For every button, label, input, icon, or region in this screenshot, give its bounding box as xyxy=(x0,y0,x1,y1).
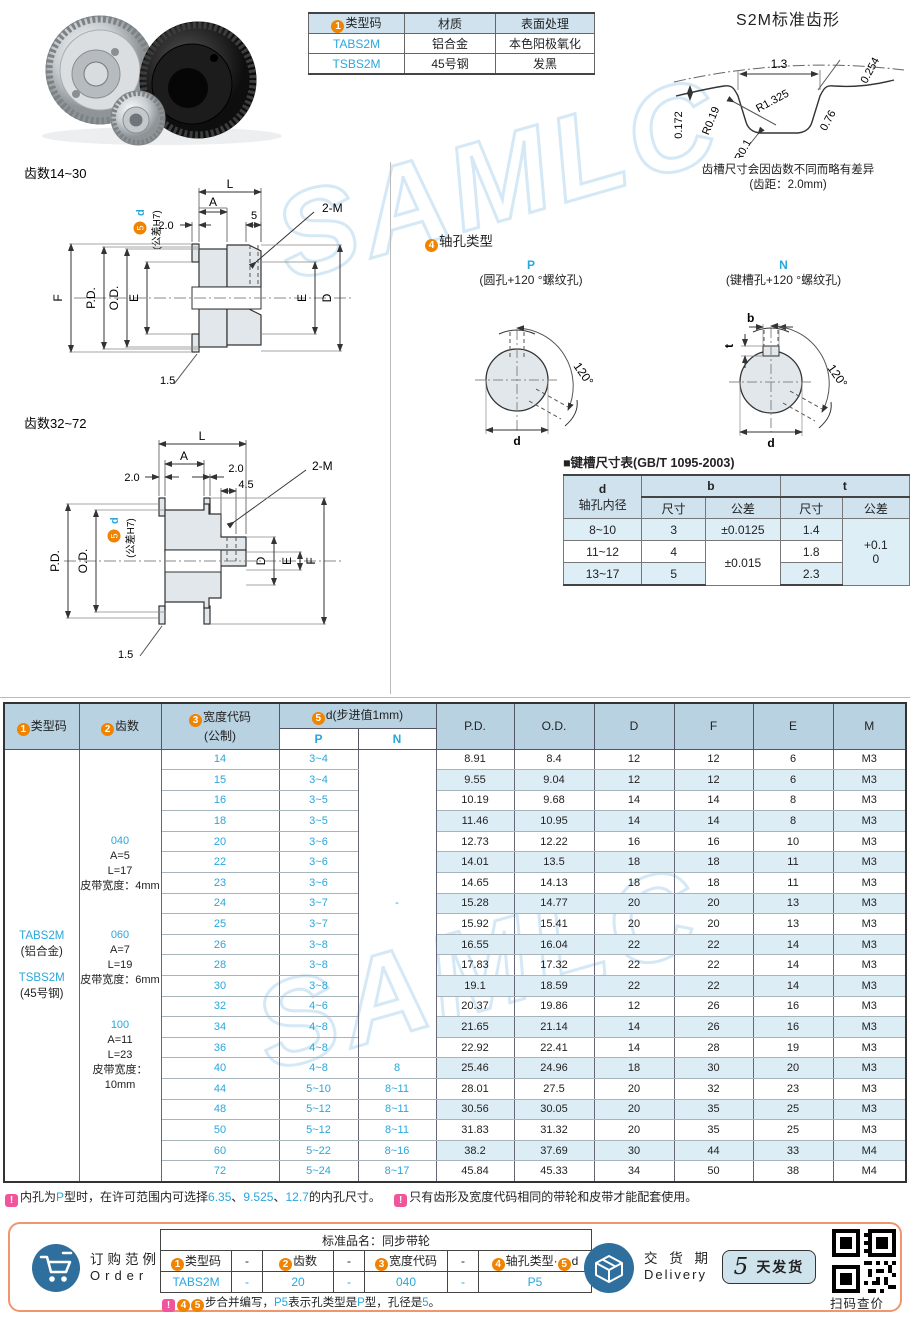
width-code-cell: 040A=5L=17皮带宽度：4mm060A=7L=19皮带宽度：6mm100A… xyxy=(79,749,161,1182)
kw-header-b: b xyxy=(642,475,780,497)
value-d: 22 xyxy=(594,934,674,955)
kw-b: 3 xyxy=(642,519,706,541)
exclamation-icon: ! xyxy=(394,1194,407,1207)
teeth-count: 15 xyxy=(161,770,279,791)
value-f: 14 xyxy=(674,790,753,811)
kw-d: 11~12 xyxy=(564,541,642,563)
value-od: 22.41 xyxy=(514,1037,594,1058)
value-d: 20 xyxy=(594,1079,674,1100)
order-footer: 订购范例 Order 标准品名：同步带轮 1类型码 - 2齿数 - 3宽度代码 … xyxy=(8,1222,902,1312)
order-value-row: TABS2M-20 -040-P5 xyxy=(161,1272,592,1293)
value-f: 30 xyxy=(674,1058,753,1079)
value-od: 14.77 xyxy=(514,893,594,914)
spec-header-type: 1类型码 xyxy=(309,13,405,34)
pulley-photo-illustration xyxy=(12,8,292,150)
drawing-large-teeth: 齿数32~72 L A xyxy=(14,410,384,697)
value-e: 11 xyxy=(753,873,833,894)
value-f: 28 xyxy=(674,1037,753,1058)
value-od: 14.13 xyxy=(514,873,594,894)
teeth-count: 34 xyxy=(161,1017,279,1038)
teeth-count: 36 xyxy=(161,1037,279,1058)
value-m: M3 xyxy=(833,1017,906,1038)
svg-text:齿数14~30: 齿数14~30 xyxy=(24,166,87,181)
value-m: M3 xyxy=(833,1099,906,1120)
value-e: 25 xyxy=(753,1120,833,1141)
material-spec-table: 1类型码 材质 表面处理 TABS2M 铝合金 本色阳极氧化 TSBS2M 45… xyxy=(308,12,595,75)
teeth-count: 26 xyxy=(161,934,279,955)
value-pd: 17.83 xyxy=(436,955,514,976)
value-od: 24.96 xyxy=(514,1058,594,1079)
value-od: 45.33 xyxy=(514,1161,594,1182)
value-f: 22 xyxy=(674,955,753,976)
value-m: M3 xyxy=(833,811,906,832)
value-e: 6 xyxy=(753,770,833,791)
d-range-p: 3~7 xyxy=(279,914,358,935)
svg-text:1.5: 1.5 xyxy=(118,649,133,661)
section-divider xyxy=(390,162,391,694)
value-pd: 10.19 xyxy=(436,790,514,811)
main-spec-table: 1类型码 2齿数 3宽度代码(公制) 5d(步进值1mm) P.D. O.D. … xyxy=(3,702,907,1183)
shaft-hole-n-diagram: N(键槽孔+120 °螺纹孔) b t xyxy=(671,258,896,453)
svg-text:d: d xyxy=(109,517,121,524)
mt-header-width: 3宽度代码(公制) xyxy=(161,703,279,749)
svg-text:E: E xyxy=(127,294,141,302)
d-range-p: 3~7 xyxy=(279,893,358,914)
d-range-n: 8~11 xyxy=(358,1079,436,1100)
value-od: 9.68 xyxy=(514,790,594,811)
value-f: 32 xyxy=(674,1079,753,1100)
value-e: 25 xyxy=(753,1099,833,1120)
value-f: 26 xyxy=(674,996,753,1017)
value-m: M3 xyxy=(833,1079,906,1100)
svg-text:A: A xyxy=(209,195,217,209)
value-pd: 31.83 xyxy=(436,1120,514,1141)
kw-t: 2.3 xyxy=(780,563,842,586)
width-code-block-100: 100A=11L=23皮带宽度：10mm xyxy=(80,1018,161,1093)
teeth-count: 20 xyxy=(161,831,279,852)
value-f: 18 xyxy=(674,852,753,873)
d-range-p: 5~12 xyxy=(279,1099,358,1120)
svg-text:P.D.: P.D. xyxy=(48,550,62,572)
d-range-p: 4~8 xyxy=(279,1017,358,1038)
value-m: M3 xyxy=(833,934,906,955)
value-pd: 12.73 xyxy=(436,831,514,852)
value-e: 14 xyxy=(753,934,833,955)
svg-text:t: t xyxy=(722,344,736,348)
value-d: 22 xyxy=(594,955,674,976)
svg-text:D: D xyxy=(254,556,268,565)
svg-text:0.254: 0.254 xyxy=(859,56,883,86)
drawing-small-teeth: 齿数14~30 L A 2.0 xyxy=(14,162,384,413)
material: 45号钢 xyxy=(405,54,496,75)
value-m: M3 xyxy=(833,831,906,852)
value-pd: 30.56 xyxy=(436,1099,514,1120)
value-f: 50 xyxy=(674,1161,753,1182)
svg-text:齿数32~72: 齿数32~72 xyxy=(24,416,87,431)
mt-header-e: E xyxy=(753,703,833,749)
svg-text:d: d xyxy=(767,436,774,448)
value-f: 16 xyxy=(674,831,753,852)
d-range-p: 3~5 xyxy=(279,790,358,811)
d-range-p: 4~6 xyxy=(279,996,358,1017)
value-d: 20 xyxy=(594,893,674,914)
svg-text:R0.19: R0.19 xyxy=(700,105,722,137)
value-od: 17.32 xyxy=(514,955,594,976)
type-code: TABS2M xyxy=(309,34,405,54)
svg-text:2.0: 2.0 xyxy=(124,472,139,484)
d-range-p: 3~6 xyxy=(279,873,358,894)
teeth-count: 40 xyxy=(161,1058,279,1079)
svg-text:1.5: 1.5 xyxy=(160,375,175,387)
value-e: 20 xyxy=(753,1058,833,1079)
value-m: M3 xyxy=(833,893,906,914)
value-d: 14 xyxy=(594,790,674,811)
value-f: 18 xyxy=(674,873,753,894)
value-d: 20 xyxy=(594,1120,674,1141)
teeth-count: 60 xyxy=(161,1140,279,1161)
value-d: 20 xyxy=(594,914,674,935)
width-code-block-060: 060A=7L=19皮带宽度：6mm xyxy=(80,928,161,988)
value-od: 15.41 xyxy=(514,914,594,935)
value-pd: 8.91 xyxy=(436,749,514,770)
keyway-table: d轴孔内径 b t 尺寸 公差 尺寸 公差 8~10 3 ±0.0125 1.4… xyxy=(563,474,910,586)
exclamation-icon: ! xyxy=(5,1194,18,1207)
value-m: M3 xyxy=(833,770,906,791)
value-od: 9.04 xyxy=(514,770,594,791)
mt-header-n: N xyxy=(358,728,436,749)
value-m: M4 xyxy=(833,1140,906,1161)
order-note: !45步合并编写，P5表示孔类型是P型，孔径是5。 xyxy=(162,1294,440,1312)
teeth-count: 30 xyxy=(161,976,279,997)
qr-code xyxy=(832,1229,896,1293)
order-header-row: 1类型码 - 2齿数 - 3宽度代码 - 4轴孔类型·5d xyxy=(161,1251,592,1272)
surface-finish: 发黑 xyxy=(496,54,595,75)
kw-t: 1.8 xyxy=(780,541,842,563)
teeth-count: 14 xyxy=(161,749,279,770)
svg-text:L: L xyxy=(199,429,206,443)
value-m: M3 xyxy=(833,976,906,997)
value-pd: 22.92 xyxy=(436,1037,514,1058)
exclamation-icon: ! xyxy=(162,1299,175,1312)
tooth-profile-section: S2M标准齿形 1.3 0.172 0.254 R1.325 R0.19 0.7… xyxy=(668,6,908,193)
kw-b: 4 xyxy=(642,541,706,563)
svg-text:2-M: 2-M xyxy=(312,459,333,473)
value-e: 23 xyxy=(753,1079,833,1100)
value-e: 11 xyxy=(753,852,833,873)
value-pd: 20.37 xyxy=(436,996,514,1017)
mt-header-m: M xyxy=(833,703,906,749)
teeth-count: 28 xyxy=(161,955,279,976)
mt-header-od: O.D. xyxy=(514,703,594,749)
d-range-p: 5~22 xyxy=(279,1140,358,1161)
teeth-count: 24 xyxy=(161,893,279,914)
value-d: 30 xyxy=(594,1140,674,1161)
delivery-box-icon xyxy=(582,1241,636,1295)
svg-text:E: E xyxy=(280,557,294,565)
type-code-cell: TABS2M(铝合金)TSBS2M(45号钢) xyxy=(4,749,79,1182)
value-m: M3 xyxy=(833,1058,906,1079)
svg-text:2.0: 2.0 xyxy=(228,463,243,475)
svg-text:O.D.: O.D. xyxy=(76,549,90,574)
value-f: 22 xyxy=(674,976,753,997)
value-m: M3 xyxy=(833,790,906,811)
shaft-hole-section: 4轴孔类型 P(圆孔+120 °螺纹孔) 120° xyxy=(425,230,905,453)
value-f: 12 xyxy=(674,770,753,791)
value-od: 8.4 xyxy=(514,749,594,770)
order-product-name: 标准品名：同步带轮 xyxy=(161,1230,592,1251)
svg-text:(公差H7): (公差H7) xyxy=(124,518,137,557)
svg-text:E: E xyxy=(295,294,309,302)
svg-text:D: D xyxy=(320,293,334,302)
kw-t-tol: +0.10 xyxy=(842,519,909,586)
value-od: 30.05 xyxy=(514,1099,594,1120)
d-range-n: 8 xyxy=(358,1058,436,1079)
value-pd: 38.2 xyxy=(436,1140,514,1161)
value-d: 14 xyxy=(594,1037,674,1058)
svg-text:F: F xyxy=(304,557,318,564)
value-pd: 14.01 xyxy=(436,852,514,873)
kw-header-size: 尺寸 xyxy=(780,497,842,519)
value-e: 13 xyxy=(753,914,833,935)
value-d: 16 xyxy=(594,831,674,852)
svg-text:1.3: 1.3 xyxy=(771,57,788,71)
spec-row-14: TABS2M(铝合金)TSBS2M(45号钢)040A=5L=17皮带宽度：4m… xyxy=(4,749,906,770)
value-pd: 21.65 xyxy=(436,1017,514,1038)
kw-header-tol: 公差 xyxy=(842,497,909,519)
d-range-p: 5~10 xyxy=(279,1079,358,1100)
svg-text:A: A xyxy=(180,449,188,463)
spec-header-finish: 表面处理 xyxy=(496,13,595,34)
teeth-count: 25 xyxy=(161,914,279,935)
value-d: 22 xyxy=(594,976,674,997)
value-d: 12 xyxy=(594,770,674,791)
material: 铝合金 xyxy=(405,34,496,54)
value-pd: 25.46 xyxy=(436,1058,514,1079)
value-m: M3 xyxy=(833,996,906,1017)
value-od: 10.95 xyxy=(514,811,594,832)
teeth-count: 72 xyxy=(161,1161,279,1182)
d-range-p: 3~6 xyxy=(279,831,358,852)
mt-header-dcol: D xyxy=(594,703,674,749)
svg-text:5: 5 xyxy=(251,210,257,222)
value-pd: 11.46 xyxy=(436,811,514,832)
teeth-count: 23 xyxy=(161,873,279,894)
tooth-profile-note: 齿槽尺寸会因齿数不同而略有差异 (齿距：2.0mm) xyxy=(668,163,908,193)
section-divider xyxy=(0,697,910,698)
value-e: 16 xyxy=(753,996,833,1017)
kw-d: 8~10 xyxy=(564,519,642,541)
value-f: 26 xyxy=(674,1017,753,1038)
value-e: 33 xyxy=(753,1140,833,1161)
value-m: M3 xyxy=(833,1120,906,1141)
value-m: M3 xyxy=(833,873,906,894)
cart-icon xyxy=(30,1242,82,1294)
svg-text:0.76: 0.76 xyxy=(818,108,839,133)
value-pd: 15.92 xyxy=(436,914,514,935)
value-m: M3 xyxy=(833,914,906,935)
value-d: 14 xyxy=(594,811,674,832)
value-pd: 16.55 xyxy=(436,934,514,955)
value-f: 35 xyxy=(674,1120,753,1141)
value-od: 19.86 xyxy=(514,996,594,1017)
d-range-p: 3~4 xyxy=(279,749,358,770)
value-d: 14 xyxy=(594,1017,674,1038)
value-f: 12 xyxy=(674,749,753,770)
svg-text:0.172: 0.172 xyxy=(673,111,685,139)
mt-header-type: 1类型码 xyxy=(4,703,79,749)
spec-header-material: 材质 xyxy=(405,13,496,34)
value-od: 12.22 xyxy=(514,831,594,852)
value-d: 34 xyxy=(594,1161,674,1182)
teeth-count: 16 xyxy=(161,790,279,811)
mt-header-p: P xyxy=(279,728,358,749)
value-od: 31.32 xyxy=(514,1120,594,1141)
delivery-days-badge: 5天发货 xyxy=(722,1250,816,1284)
kw-header-tol: 公差 xyxy=(706,497,780,519)
delivery-label: 交 货 期 Delivery xyxy=(644,1247,712,1282)
value-e: 38 xyxy=(753,1161,833,1182)
teeth-count: 50 xyxy=(161,1120,279,1141)
value-m: M4 xyxy=(833,1161,906,1182)
teeth-count: 48 xyxy=(161,1099,279,1120)
value-pd: 28.01 xyxy=(436,1079,514,1100)
shaft-hole-p-diagram: P(圆孔+120 °螺纹孔) 120° d xyxy=(425,258,637,453)
value-d: 12 xyxy=(594,996,674,1017)
svg-text:2-M: 2-M xyxy=(322,201,343,215)
kw-b-tol: ±0.0125 xyxy=(706,519,780,541)
kw-d: 13~17 xyxy=(564,563,642,586)
value-od: 13.5 xyxy=(514,852,594,873)
value-m: M3 xyxy=(833,852,906,873)
value-pd: 9.55 xyxy=(436,770,514,791)
value-f: 14 xyxy=(674,811,753,832)
mt-header-d: 5d(步进值1mm) xyxy=(279,703,436,728)
kw-header-t: t xyxy=(780,475,909,497)
svg-text:d: d xyxy=(135,209,147,216)
value-m: M3 xyxy=(833,1037,906,1058)
kw-b: 5 xyxy=(642,563,706,586)
keyway-table-title: ■键槽尺寸表(GB/T 1095-2003) xyxy=(563,452,910,471)
d-range-p: 3~8 xyxy=(279,955,358,976)
value-d: 18 xyxy=(594,1058,674,1079)
value-f: 20 xyxy=(674,914,753,935)
value-e: 13 xyxy=(753,893,833,914)
kw-header-d: d轴孔内径 xyxy=(564,475,642,519)
value-d: 20 xyxy=(594,1099,674,1120)
d-range-p: 4~8 xyxy=(279,1058,358,1079)
keyway-row: 8~10 3 ±0.0125 1.4 +0.10 xyxy=(564,519,910,541)
value-e: 14 xyxy=(753,976,833,997)
value-f: 22 xyxy=(674,934,753,955)
svg-text:d: d xyxy=(513,434,520,448)
d-range-n: 8~17 xyxy=(358,1161,436,1182)
value-f: 35 xyxy=(674,1099,753,1120)
svg-text:L: L xyxy=(227,177,234,191)
tooth-profile-title: S2M标准齿形 xyxy=(668,6,908,30)
svg-text:O.D.: O.D. xyxy=(107,286,121,311)
svg-text:5: 5 xyxy=(110,533,120,538)
mt-header-teeth: 2齿数 xyxy=(79,703,161,749)
kw-t: 1.4 xyxy=(780,519,842,541)
small-pulley xyxy=(111,91,165,145)
value-pd: 14.65 xyxy=(436,873,514,894)
type-code: TSBS2M xyxy=(309,54,405,75)
d-range-p: 5~12 xyxy=(279,1120,358,1141)
order-example-label: 订购范例 Order xyxy=(90,1248,160,1283)
value-od: 27.5 xyxy=(514,1079,594,1100)
value-m: M3 xyxy=(833,955,906,976)
svg-text:b: b xyxy=(747,311,754,325)
d-range-n: 8~11 xyxy=(358,1120,436,1141)
teeth-count: 32 xyxy=(161,996,279,1017)
value-od: 18.59 xyxy=(514,976,594,997)
catalog-page: SAMLC SAMLC xyxy=(0,0,910,1317)
kw-header-size: 尺寸 xyxy=(642,497,706,519)
d-range-p: 5~24 xyxy=(279,1161,358,1182)
svg-text:P.D.: P.D. xyxy=(84,287,98,309)
product-photo xyxy=(12,8,292,155)
shaft-hole-title: 4轴孔类型 xyxy=(425,230,905,252)
width-code-block-040: 040A=5L=17皮带宽度：4mm xyxy=(80,834,161,894)
value-m: M3 xyxy=(833,749,906,770)
d-range-n: 8~11 xyxy=(358,1099,436,1120)
qr-caption: 扫码查价 xyxy=(830,1293,884,1312)
svg-text:R1.325: R1.325 xyxy=(754,88,791,115)
d-range-p: 3~4 xyxy=(279,770,358,791)
keyway-section: ■键槽尺寸表(GB/T 1095-2003) d轴孔内径 b t 尺寸 公差 尺… xyxy=(563,452,910,586)
value-d: 18 xyxy=(594,873,674,894)
surface-finish: 本色阳极氧化 xyxy=(496,34,595,54)
spec-row: TABS2M 铝合金 本色阳极氧化 xyxy=(309,34,595,54)
order-example-table: 标准品名：同步带轮 1类型码 - 2齿数 - 3宽度代码 - 4轴孔类型·5d … xyxy=(160,1229,592,1293)
value-f: 20 xyxy=(674,893,753,914)
d-range-p: 3~6 xyxy=(279,852,358,873)
svg-text:4.5: 4.5 xyxy=(238,479,253,491)
value-e: 19 xyxy=(753,1037,833,1058)
svg-text:5: 5 xyxy=(136,225,146,230)
value-e: 8 xyxy=(753,790,833,811)
circled-1: 1 xyxy=(331,20,344,33)
d-range-n: 8~16 xyxy=(358,1140,436,1161)
value-d: 12 xyxy=(594,749,674,770)
value-e: 14 xyxy=(753,955,833,976)
mt-header-pd: P.D. xyxy=(436,703,514,749)
value-od: 16.04 xyxy=(514,934,594,955)
value-f: 44 xyxy=(674,1140,753,1161)
value-pd: 19.1 xyxy=(436,976,514,997)
value-d: 18 xyxy=(594,852,674,873)
value-od: 21.14 xyxy=(514,1017,594,1038)
value-e: 10 xyxy=(753,831,833,852)
circled-4: 4 xyxy=(425,239,438,252)
footnotes: !内孔为P型时，在许可范围内可选择6.35、9.525、12.7的内孔尺寸。 !… xyxy=(5,1188,907,1207)
svg-text:F: F xyxy=(51,294,65,301)
tooth-profile-diagram: 1.3 0.172 0.254 R1.325 R0.19 0.76 R0.1 xyxy=(668,30,908,158)
d-range-p: 4~8 xyxy=(279,1037,358,1058)
value-e: 6 xyxy=(753,749,833,770)
teeth-count: 44 xyxy=(161,1079,279,1100)
d-range-p: 3~5 xyxy=(279,811,358,832)
value-e: 16 xyxy=(753,1017,833,1038)
svg-text:R0.1: R0.1 xyxy=(733,138,755,158)
kw-b-tol: ±0.015 xyxy=(706,541,780,586)
value-od: 37.69 xyxy=(514,1140,594,1161)
svg-text:120°: 120° xyxy=(571,360,597,389)
value-e: 8 xyxy=(753,811,833,832)
value-pd: 15.28 xyxy=(436,893,514,914)
mt-header-f: F xyxy=(674,703,753,749)
value-pd: 45.84 xyxy=(436,1161,514,1182)
